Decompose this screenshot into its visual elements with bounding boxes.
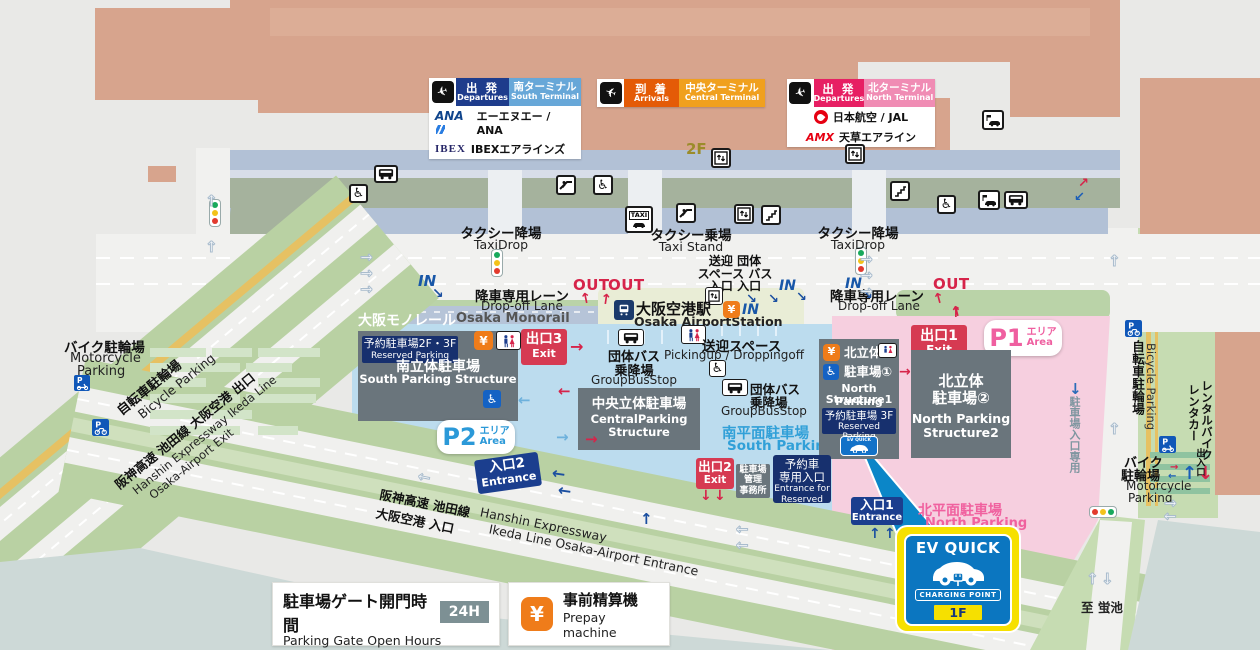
groupbus-en: GroupBusStop [721,404,807,418]
flow-arrow [556,428,569,446]
taxi-drop-label-en: TaxiDrop [812,237,904,252]
bus-icon [618,329,644,346]
north1-en2: Structure1 [819,394,899,407]
flow-arrow [1168,471,1176,482]
out-arrow [599,291,613,308]
escalator-icon [676,203,696,223]
gate-hours-title-en: Parking Gate Open Hours [283,633,489,650]
ev-floor-label: 1F [934,605,981,620]
entrance-arrow [884,526,896,542]
restroom-icon [878,343,897,358]
prepay-jp: 事前精算機 [563,589,657,610]
prepay-machine-legend: 事前精算機 Prepay machine [508,582,670,646]
north-parking-structure2: 北立体 駐車場② North Parking Structure2 [911,350,1011,458]
to-hotarugaike-label: 至 蛍池 [1081,597,1123,616]
parking-office-sign: 駐車場 管理 事務所 [736,464,770,498]
legend-south-terminal: 出 発 Departures 南ターミナル South Terminal ANA… [429,78,581,159]
monorail-label-en: Osaka Monorail [456,311,570,326]
elevator-icon [734,204,754,224]
prepay-en: Prepay machine [563,610,657,640]
exit-arrow [700,488,712,504]
car-rental-icon [982,110,1004,130]
wheelchair-icon [823,364,839,380]
north-parking-structure1: 北立体 駐車場① North Parking Structure1 予約駐車場 … [819,339,899,459]
ibex-logo: IBEX [435,143,466,155]
north-terminal-en: North Terminal [866,94,933,102]
ibex-name: IBEXエアラインズ [471,141,565,157]
escalator-icon [556,175,576,195]
wheelchair-icon [709,360,726,377]
flow-arrow [585,430,598,448]
flow-arrow [1078,176,1089,191]
central-terminal-en: Central Terminal [685,94,759,102]
amx-name: 天草エアライン [839,129,916,145]
ana-logo: ANA [435,109,472,137]
south-terminal-en: South Terminal [511,93,579,101]
road-arrow [1164,507,1177,525]
road-arrow [205,192,218,210]
dropoff-lane-en: Drop-off Lane [838,299,920,313]
in-marker: IN [742,302,759,318]
ev-quick-sign: EV QUICK CHARGING POINT 1F [897,527,1019,631]
legend-north-terminal: 出 発 Departures 北ターミナル North Terminal 日本航… [787,79,935,147]
wheelchair-icon [349,184,368,203]
train-station-icon [614,300,634,320]
elevator-icon [711,148,731,168]
flow-arrow [558,382,571,400]
restroom-icon [496,331,521,350]
gate-hours-legend: 駐車場ゲート開門時間 24H Parking Gate Open Hours ※… [272,582,500,646]
road-arrow [736,536,749,554]
taxi-stand-label-en: Taxi Stand [645,239,737,254]
flow-arrow [518,391,531,409]
south-structure-en: South Parking Structure [358,372,518,386]
road-arrow [205,238,218,256]
svg-text:P: P [77,376,83,385]
reserved-parking-3f-sign: 予約駐車場 3F Reserved Parking [822,408,896,434]
traffic-light [491,249,503,277]
pickup-space-en: Pickingup / Droppingoff [664,348,804,362]
arrivals-en: Arrivals [634,95,669,103]
flow-arrow [1074,190,1085,205]
road-arrow [1108,252,1121,270]
flow-arrow [1069,380,1082,398]
road-arrow [1101,570,1114,588]
groupbus-en: GroupBusStop [590,373,678,387]
traffic-light [1089,506,1117,518]
yen-fare-icon [723,301,740,318]
flow-arrow [899,364,911,380]
flow-arrow [1198,463,1213,484]
airport-parking-map: 出 発 Departures 南ターミナル South Terminal ANA… [0,0,1260,650]
svg-text:P: P [1162,438,1168,447]
motorcycle-parking-icon: P [74,375,90,391]
road-arrow [1086,570,1099,588]
amx-logo: AMX [806,131,834,144]
station-label-en: Osaka AirportStation [634,314,783,329]
yen-prepay-icon [521,597,553,631]
in-arrow [796,290,807,305]
charging-point-badge: CHARGING POINT [915,589,1002,601]
yen-payment-icon [823,344,840,361]
exit3-sign: 出口3 Exit [521,329,567,365]
bicycle-parking-icon: P [92,419,109,436]
jal-logo [814,110,828,124]
car-rental-icon [978,190,1000,210]
arrival-plane-icon [597,79,624,107]
road-arrow [360,280,373,298]
out-marker: OUT [608,276,645,294]
bus-icon [1004,191,1028,209]
road-arrow [1108,420,1121,438]
entrance1-sign: 入口1 Entrance [851,497,903,525]
stairs-icon [890,181,910,201]
bus-icon [374,165,398,183]
flow-arrow [1182,463,1197,484]
bicycle-parking-right-en: Bicycle Parking [1144,343,1158,430]
monorail-label-jp: 大阪モノレール [358,310,456,330]
entrance-arrow [557,480,573,501]
exit-arrow [570,337,583,356]
exit-arrow [714,488,726,504]
departure-plane-icon [429,78,456,106]
ev-quick-mini-icon: EV QUICK [840,436,878,456]
ev-car-icon [925,557,991,587]
flow-arrow [950,305,962,321]
reserved-entrance-sign: 予約車 専用入口 Entrance for Reserved [773,455,831,503]
parking-entrance-only-label: 駐車場入口専用 [1066,396,1082,473]
osaka-airport-parking-map-page: { "colors": { "terminal_building": "#d7a… [0,0,1260,650]
gate-hours-title-jp: 駐車場ゲート開門時間 [283,588,440,636]
floor-2f-label: 2F [686,140,707,158]
wheelchair-icon [483,390,501,408]
north1-jp1: 北立体 [844,346,882,360]
wheelchair-icon [593,175,613,195]
in-arrow [432,286,444,302]
ana-name: エーエヌエー / ANA [477,108,575,137]
24h-badge: 24H [440,601,489,623]
in-marker: IN [779,278,796,294]
legend-central-terminal: 到 着 Arrivals 中央ターミナル Central Terminal [597,79,765,107]
yen-payment-icon [474,331,493,350]
p2-area-badge: P2 エリアArea [437,420,515,454]
jal-name: 日本航空 / JAL [833,109,908,125]
taxi-drop-label-en: TaxiDrop [455,237,547,252]
entrance-arrow [869,526,881,542]
bicycle-parking-icon: P [1125,320,1142,337]
motorcycle-parking-icon: P [1159,436,1176,453]
elevator-icon [845,144,865,164]
departure-plane-icon [787,79,814,107]
wheelchair-icon [937,195,956,214]
exit2-sign: 出口2 Exit [696,458,734,489]
road-arrow [860,282,873,300]
stairs-icon [761,205,781,225]
entrance-arrow [640,510,653,528]
bus-icon [722,379,748,396]
in-arrow [768,292,779,307]
departures-en: Departures [814,95,865,103]
departures-en: Departures [457,94,508,102]
north1-jp2: 駐車場① [844,365,892,379]
ev-quick-title: EV QUICK [916,539,1000,557]
